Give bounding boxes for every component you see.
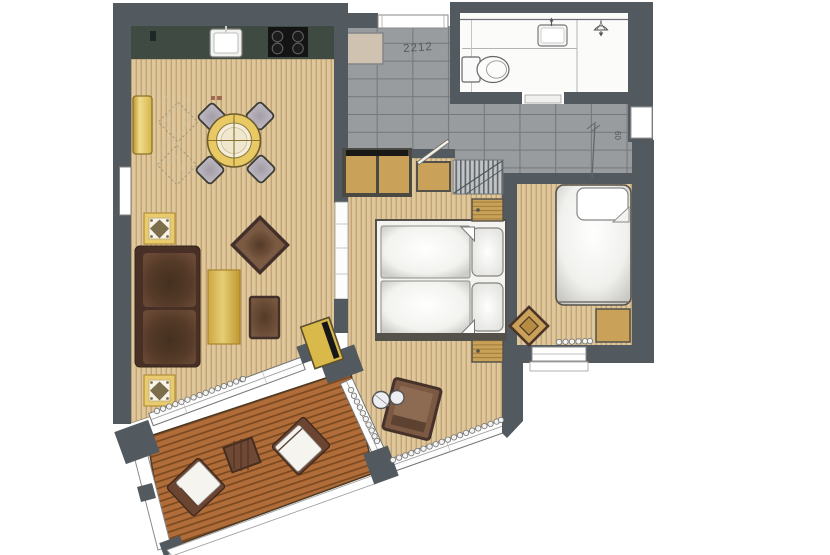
svg-text:2212: 2212 bbox=[403, 41, 433, 55]
svg-text:60: 60 bbox=[613, 131, 622, 140]
